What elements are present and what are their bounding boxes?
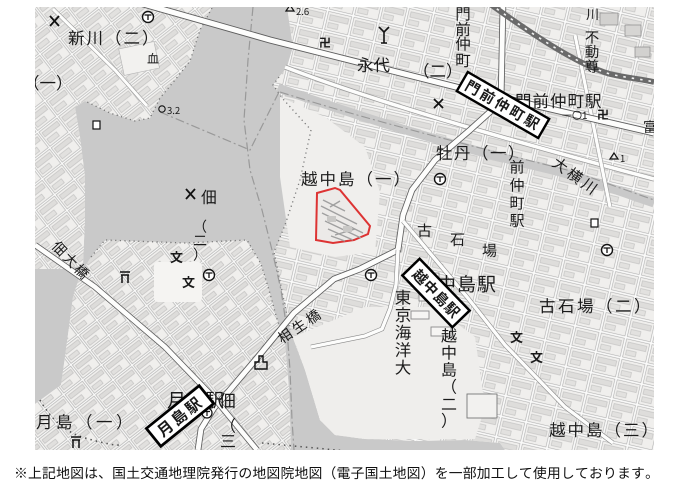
svg-text:場: 場 (482, 240, 497, 261)
svg-text:1: 1 (620, 151, 625, 165)
svg-text:文: 文 (170, 247, 183, 266)
svg-text:古石場（二）: 古石場（二） (539, 293, 653, 317)
svg-text:石: 石 (450, 229, 465, 250)
svg-text:前仲町駅: 前仲町駅 (507, 159, 528, 231)
svg-text:佃: 佃 (219, 387, 236, 412)
svg-text:（一）: （一） (35, 70, 73, 94)
svg-text:3.2: 3.2 (167, 103, 180, 117)
svg-text:血: 血 (147, 50, 159, 67)
svg-text:文: 文 (182, 272, 195, 291)
svg-text:越中島（二）: 越中島（二） (437, 327, 461, 429)
svg-text:佃: 佃 (201, 184, 217, 208)
svg-text:門前仲町: 門前仲町 (452, 7, 474, 68)
svg-text:古: 古 (417, 220, 432, 241)
svg-text:文: 文 (510, 327, 523, 346)
svg-text:2.6: 2.6 (296, 7, 309, 18)
svg-text:富: 富 (643, 117, 654, 137)
svg-text:（二）: （二） (190, 219, 210, 261)
svg-text:永代: 永代 (357, 52, 391, 76)
svg-text:新川（二）: 新川（二） (68, 25, 161, 49)
svg-text:文: 文 (530, 347, 543, 366)
svg-text:（三）: （三） (216, 417, 240, 450)
svg-text:越中島（三）: 越中島（三） (549, 417, 654, 441)
svg-text:東京海洋大: 東京海洋大 (391, 289, 415, 377)
svg-text:卍: 卍 (319, 34, 331, 51)
svg-text:牡丹（一）: 牡丹（一） (436, 140, 526, 164)
svg-text:川: 川 (586, 7, 599, 23)
svg-text:越中島（一）: 越中島（一） (301, 166, 412, 190)
svg-text:不動尊: 不動尊 (582, 29, 603, 74)
svg-text:月島（一）: 月島（一） (36, 409, 136, 433)
